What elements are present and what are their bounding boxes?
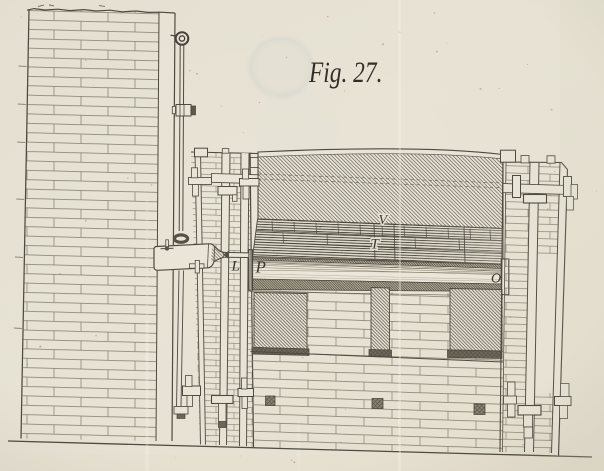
svg-text:O: O bbox=[491, 272, 501, 287]
svg-text:Fig. 27.: Fig. 27. bbox=[308, 55, 382, 88]
svg-text:L: L bbox=[231, 259, 240, 275]
svg-text:P: P bbox=[255, 258, 266, 277]
svg-text:V: V bbox=[379, 213, 389, 228]
